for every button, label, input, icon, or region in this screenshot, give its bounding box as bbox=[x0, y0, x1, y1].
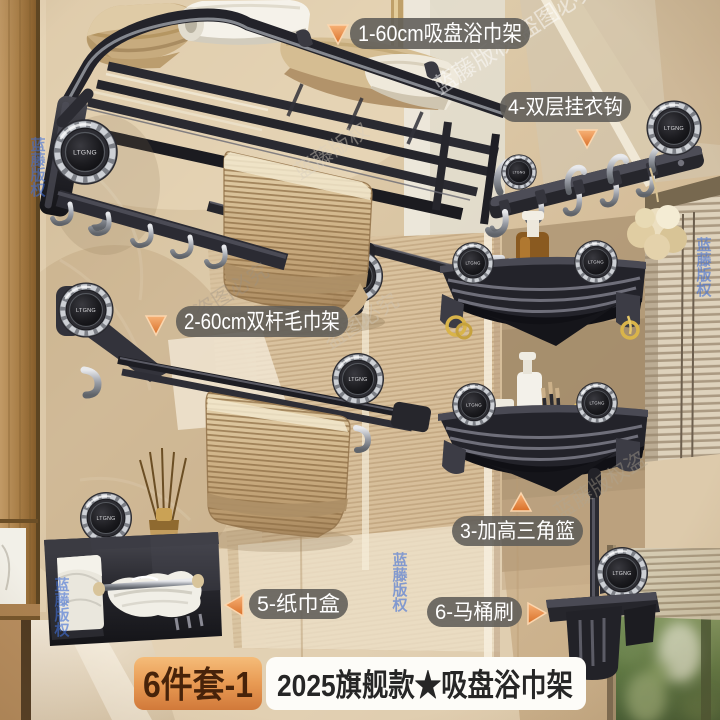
svg-text:3-加高三角篮: 3-加高三角篮 bbox=[460, 520, 575, 543]
svg-text:6-马桶刷: 6-马桶刷 bbox=[435, 601, 514, 624]
svg-text:5-纸巾盒: 5-纸巾盒 bbox=[257, 593, 340, 616]
svg-text:蓝藤版权: 蓝藤版权 bbox=[695, 236, 712, 299]
svg-text:4-双层挂衣钩: 4-双层挂衣钩 bbox=[508, 96, 623, 119]
svg-text:蓝藤版权: 蓝藤版权 bbox=[53, 576, 70, 639]
svg-text:蓝藤版权: 蓝藤版权 bbox=[29, 136, 46, 199]
svg-text:2025旗舰款★吸盘浴巾架: 2025旗舰款★吸盘浴巾架 bbox=[277, 668, 573, 703]
svg-text:1-60cm吸盘浴巾架: 1-60cm吸盘浴巾架 bbox=[358, 21, 522, 46]
svg-text:蓝藤版权: 蓝藤版权 bbox=[391, 551, 408, 614]
svg-text:6件套-1: 6件套-1 bbox=[143, 664, 253, 705]
svg-text:2-60cm双杆毛巾架: 2-60cm双杆毛巾架 bbox=[184, 309, 340, 334]
